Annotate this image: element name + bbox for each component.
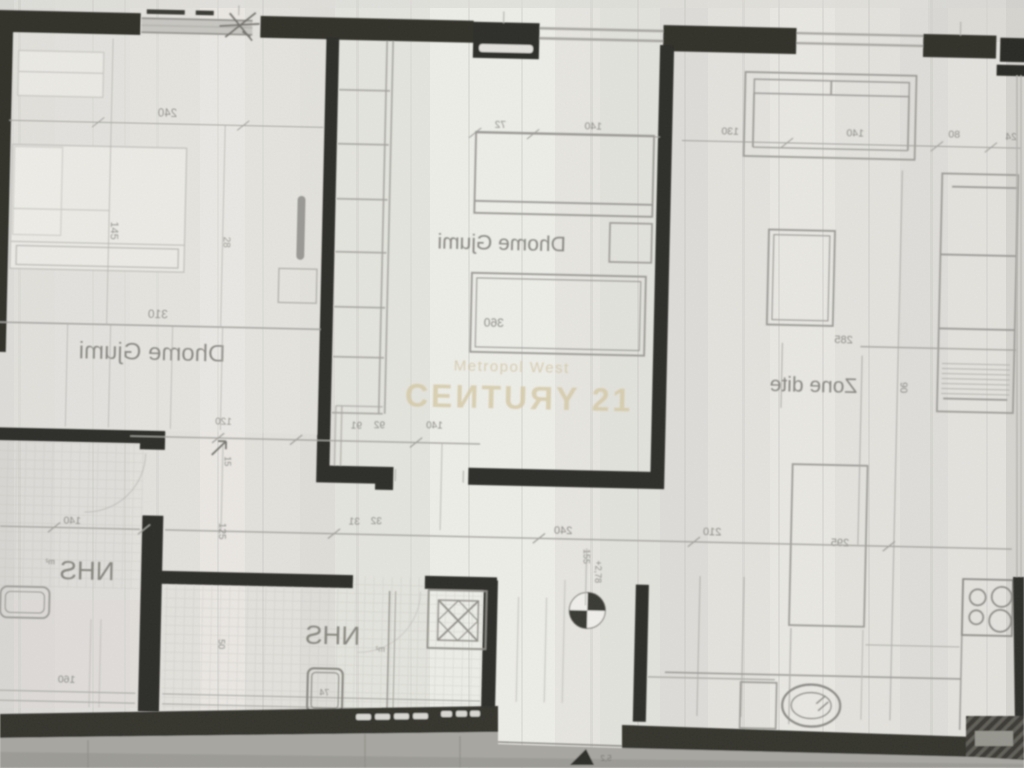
- svg-text:140: 140: [63, 514, 81, 526]
- svg-text:Dhome Gjumi: Dhome Gjumi: [437, 231, 566, 257]
- svg-text:CEИTUЯY 21: CEИTUЯY 21: [405, 377, 634, 418]
- svg-text:360: 360: [483, 315, 504, 329]
- svg-text:+2,78: +2,78: [593, 560, 604, 583]
- svg-text:NHS: NHS: [59, 555, 115, 586]
- svg-text:140: 140: [846, 127, 864, 139]
- svg-text:91: 91: [350, 421, 362, 432]
- svg-text:92: 92: [373, 420, 385, 431]
- svg-text:285: 285: [834, 334, 853, 346]
- svg-text:Zone dite: Zone dite: [769, 373, 857, 398]
- svg-text:32: 32: [370, 516, 382, 527]
- svg-text:240: 240: [554, 525, 573, 537]
- svg-text:210: 210: [703, 526, 722, 538]
- svg-text:31: 31: [348, 517, 360, 528]
- svg-text:NHS: NHS: [305, 619, 361, 650]
- svg-text:90: 90: [897, 382, 908, 394]
- svg-text:72: 72: [494, 120, 506, 131]
- svg-text:15: 15: [222, 456, 232, 466]
- svg-text:Metropol West: Metropol West: [454, 357, 570, 377]
- svg-text:28: 28: [220, 237, 231, 249]
- svg-text:24: 24: [1005, 131, 1017, 143]
- svg-text:m²: m²: [45, 557, 55, 566]
- svg-text:295: 295: [831, 537, 850, 549]
- svg-text:50: 50: [216, 639, 226, 649]
- svg-text:310: 310: [147, 307, 168, 321]
- svg-text:130: 130: [721, 125, 739, 137]
- svg-text:145: 145: [108, 221, 120, 240]
- svg-text:m²: m²: [375, 645, 385, 654]
- svg-text:Dhome Gjumi: Dhome Gjumi: [78, 337, 225, 367]
- svg-text:5,2: 5,2: [600, 754, 612, 763]
- svg-text:140: 140: [584, 120, 602, 132]
- svg-text:80: 80: [948, 128, 960, 140]
- svg-text:120: 120: [215, 417, 232, 428]
- svg-text:160: 160: [58, 673, 76, 685]
- svg-text:240: 240: [158, 108, 177, 120]
- svg-text:140: 140: [426, 420, 443, 431]
- svg-text:74: 74: [319, 688, 329, 698]
